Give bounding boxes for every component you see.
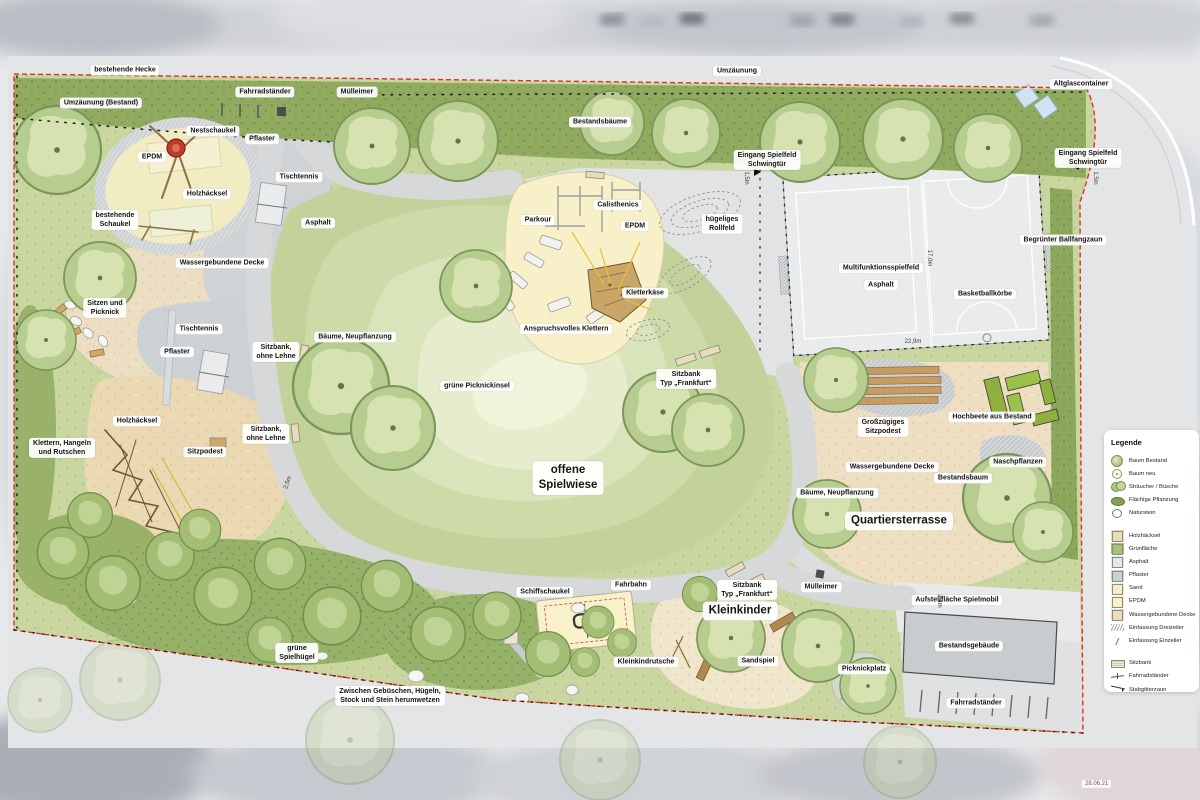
date-stamp: 28.06.21 (1082, 780, 1111, 788)
legend-item: Asphalt (1111, 555, 1192, 568)
legend-item-label: Holzhäcksel (1129, 533, 1160, 539)
legend-item-label: Baum neu (1129, 471, 1155, 477)
planting-swatch-icon (1111, 495, 1124, 506)
shrub-swatch-icon (1111, 481, 1124, 492)
tree-bestand-swatch-icon (1111, 455, 1124, 466)
square-swatch-icon (1111, 583, 1124, 594)
legend-item: Einfassung Dreizeiler (1111, 621, 1192, 634)
legend-item: Naturstein (1111, 507, 1192, 520)
legend-item-label: Wassergebundene Decke (1129, 612, 1196, 618)
tree-neu-swatch-icon (1111, 468, 1124, 479)
fence-swatch-icon (1111, 684, 1124, 695)
edge1-swatch-icon (1111, 636, 1124, 647)
legend-item-label: Stabgitterzaun (1129, 687, 1166, 693)
square-swatch-icon (1111, 543, 1124, 554)
legend: Legende Baum BestandBaum neuSträucher / … (1104, 430, 1199, 692)
legend-items: Baum BestandBaum neuSträucher / BüscheFl… (1111, 454, 1192, 696)
site-plan: bestehende HeckeUmzäunung (Bestand)Fahrr… (0, 0, 1200, 800)
legend-item-label: Einfassung Einzeiler (1129, 638, 1182, 644)
legend-item: Pflaster (1111, 569, 1192, 582)
legend-item: Fahrradständer (1111, 670, 1192, 683)
legend-item: Sitzbank (1111, 657, 1192, 670)
legend-item-label: Pflaster (1129, 572, 1149, 578)
legend-item: Sand (1111, 582, 1192, 595)
legend-item: Flächige Pflanzung (1111, 494, 1192, 507)
legend-item: Einfassung Einzeiler (1111, 634, 1192, 647)
legend-item-label: Naturstein (1129, 510, 1155, 516)
legend-title: Legende (1111, 438, 1192, 447)
legend-item-label: Asphalt (1129, 559, 1148, 565)
plan-drawing (0, 0, 1200, 800)
square-swatch-icon (1111, 570, 1124, 581)
legend-item: Sträucher / Büsche (1111, 480, 1192, 493)
legend-item-label: Fahrradständer (1129, 673, 1169, 679)
legend-item-label: Baum Bestand (1129, 458, 1167, 464)
legend-item: Holzhäcksel (1111, 529, 1192, 542)
legend-item: Wassergebundene Decke (1111, 608, 1192, 621)
legend-item-label: Einfassung Dreizeiler (1129, 625, 1184, 631)
legend-item: EPDM (1111, 595, 1192, 608)
bestandsgebaeude (903, 612, 1057, 684)
legend-item-label: Grünfläche (1129, 546, 1157, 552)
sport-field (774, 162, 1059, 356)
legend-item: Grünfläche (1111, 542, 1192, 555)
legend-item-label: EPDM (1129, 598, 1146, 604)
square-swatch-icon (1111, 596, 1124, 607)
square-swatch-icon (1111, 530, 1124, 541)
legend-item-label: Flächige Pflanzung (1129, 497, 1178, 503)
edge3-swatch-icon (1111, 622, 1124, 633)
bench-swatch-icon (1111, 658, 1124, 669)
legend-item-label: Sitzbank (1129, 660, 1151, 666)
naturstein-swatch-icon (1111, 508, 1124, 519)
legend-item: Baum Bestand (1111, 454, 1192, 467)
legend-item-label: Sand (1129, 585, 1143, 591)
bikerack-swatch-icon (1111, 671, 1124, 682)
legend-item-label: Sträucher / Büsche (1129, 484, 1178, 490)
square-swatch-icon (1111, 609, 1124, 620)
legend-item: Baum neu (1111, 467, 1192, 480)
square-swatch-icon (1111, 556, 1124, 567)
legend-item: Stabgitterzaun (1111, 683, 1192, 696)
